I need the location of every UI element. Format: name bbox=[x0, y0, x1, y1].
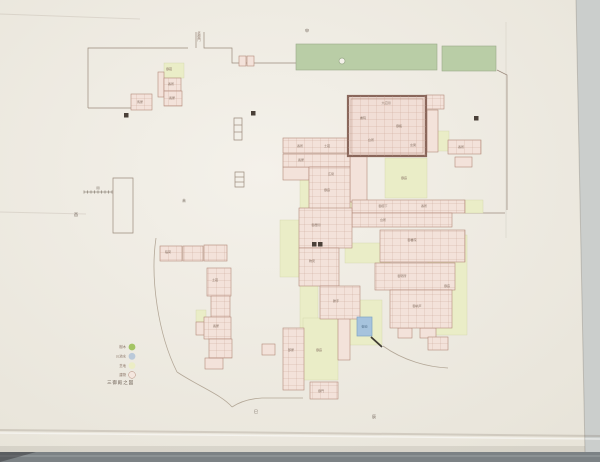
building-room-grid bbox=[183, 246, 203, 261]
map-scene: 御池間北御門御蔵番所長屋馬屋大広間書院御殿台所玄関番所土蔵長屋広間御廊下番所台所… bbox=[0, 0, 600, 462]
room-label: 御庭 bbox=[401, 175, 407, 180]
room-label: 部屋 bbox=[288, 347, 294, 352]
building-room-grid bbox=[320, 286, 360, 319]
room-label: 馬屋 bbox=[137, 99, 143, 104]
building-block bbox=[427, 110, 438, 152]
legend-swatch bbox=[129, 362, 136, 369]
building-room-grid bbox=[283, 138, 350, 153]
room-label: 御庭 bbox=[444, 283, 450, 288]
room-label: 稲荷 bbox=[165, 249, 171, 254]
building-room-grid bbox=[283, 328, 304, 390]
building-block bbox=[398, 328, 412, 338]
gate-icon bbox=[318, 242, 323, 247]
building-block bbox=[158, 72, 164, 97]
building-room-grid bbox=[426, 95, 444, 109]
scale-label: 間 bbox=[96, 185, 99, 190]
building-room-grid bbox=[428, 337, 448, 350]
room-label: 御居間 bbox=[311, 222, 320, 227]
photo-of-antique-floor-plan-map: 御池間北御門御蔵番所長屋馬屋大広間書院御殿台所玄関番所土蔵長屋広間御廊下番所台所… bbox=[0, 0, 600, 462]
building-room-grid bbox=[209, 339, 232, 358]
building-room-grid bbox=[299, 248, 339, 286]
building-room-grid bbox=[204, 245, 227, 261]
gate-icon bbox=[124, 113, 129, 118]
building-room-grid bbox=[211, 296, 230, 317]
room-label: 御蔵 bbox=[166, 66, 172, 71]
room-label: 長屋 bbox=[213, 323, 219, 328]
building-room-grid bbox=[448, 140, 481, 154]
section-mark: 辰 bbox=[372, 414, 376, 419]
room-label: 台所 bbox=[380, 217, 386, 222]
building-room-grid bbox=[390, 290, 452, 328]
building-room-grid bbox=[352, 213, 452, 227]
room-label: 番所 bbox=[421, 203, 427, 208]
gate-icon bbox=[251, 111, 256, 116]
section-mark: 酉 bbox=[74, 212, 78, 217]
map-title: 三御殿之図 bbox=[107, 379, 134, 386]
building-block bbox=[239, 56, 246, 66]
room-label: 土蔵 bbox=[324, 143, 330, 148]
table-bottom-edge bbox=[0, 452, 600, 462]
building-block bbox=[338, 318, 350, 360]
building-block bbox=[262, 344, 275, 355]
courtyard-area bbox=[463, 200, 483, 213]
legend-swatch bbox=[129, 344, 136, 351]
section-mark: 未 bbox=[182, 197, 186, 203]
building-block bbox=[420, 328, 436, 338]
legend-swatch bbox=[129, 372, 136, 379]
legend-swatch bbox=[129, 353, 136, 360]
section-mark: 巳 bbox=[254, 409, 258, 414]
building-room-grid bbox=[352, 200, 465, 213]
main-building-room-grid bbox=[348, 96, 426, 156]
room-label: 番所 bbox=[458, 144, 464, 149]
room-label: 番所 bbox=[168, 81, 174, 86]
gate-name-label: 門 bbox=[197, 38, 200, 42]
room-label: 書院 bbox=[360, 115, 366, 120]
greenbelt-strip bbox=[442, 46, 496, 71]
room-label: 御廊下 bbox=[378, 203, 387, 208]
building-block bbox=[455, 157, 472, 167]
room-label: 御寝所 bbox=[397, 273, 406, 278]
building-room-grid bbox=[283, 154, 350, 167]
building-room-grid bbox=[207, 268, 231, 296]
room-label: 御納戸 bbox=[412, 303, 421, 308]
room-label: 御庭 bbox=[316, 347, 322, 352]
room-label: 長屋 bbox=[298, 157, 304, 162]
legend-label: 建物 bbox=[119, 372, 126, 377]
room-label: 御庭 bbox=[324, 187, 330, 192]
building-block bbox=[247, 56, 254, 66]
legend-label: 樹木 bbox=[119, 344, 126, 349]
gate-icon bbox=[312, 242, 317, 247]
room-label: 御殿 bbox=[396, 123, 402, 128]
room-label: 玄関 bbox=[410, 142, 416, 147]
legend-label: 芝地 bbox=[119, 363, 126, 368]
building-block bbox=[350, 152, 367, 202]
building-room-grid bbox=[204, 317, 231, 339]
building-room-grid bbox=[299, 208, 352, 248]
room-label: 御書院 bbox=[407, 237, 416, 242]
pond-label: 御池 bbox=[361, 324, 367, 329]
room-label: 番所 bbox=[297, 143, 303, 148]
room-label: 御門 bbox=[318, 388, 324, 393]
room-label: 大広間 bbox=[381, 100, 390, 105]
room-label: 台所 bbox=[368, 137, 374, 142]
room-label: 物見 bbox=[309, 258, 315, 263]
building-block bbox=[205, 358, 223, 369]
room-label: 勝手 bbox=[333, 298, 339, 303]
room-label: 長屋 bbox=[169, 95, 175, 100]
greenbelt-strip bbox=[296, 44, 437, 70]
gate-icon bbox=[474, 116, 479, 121]
paper-edge-shadow bbox=[0, 446, 585, 452]
room-label: 広間 bbox=[328, 171, 334, 176]
room-label: 土蔵 bbox=[212, 277, 218, 282]
greenbelt-marker bbox=[339, 58, 345, 64]
legend-label: 川池水 bbox=[116, 354, 127, 359]
building-room-grid bbox=[380, 230, 465, 262]
section-mark: 申 bbox=[305, 27, 309, 33]
building-block bbox=[283, 167, 309, 180]
